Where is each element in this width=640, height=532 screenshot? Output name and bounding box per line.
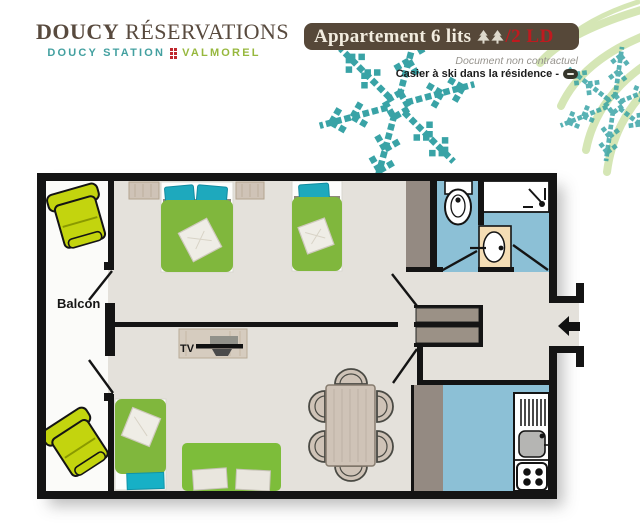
stove	[517, 463, 547, 490]
brochure-page: DOUCYRÉSERVATIONS DOUCY STATION VALMOREL…	[0, 0, 640, 532]
wardrobe	[406, 181, 430, 268]
kitchen-counter	[514, 393, 549, 491]
nightstand	[236, 182, 264, 199]
single-bed	[292, 181, 342, 271]
balcony-label: Balcon	[57, 296, 100, 311]
bench-sofa	[182, 443, 281, 491]
kitchen-divider	[411, 385, 443, 491]
shower	[483, 181, 549, 212]
double-bed	[161, 182, 233, 272]
kitchen-sink	[519, 431, 549, 457]
tv-label: TV	[180, 343, 195, 355]
floor-plan: Balcon TV	[0, 0, 640, 532]
toilet	[445, 181, 472, 225]
dish-drainer	[521, 399, 545, 426]
nightstand	[129, 182, 159, 199]
sofa-bed	[115, 399, 166, 490]
